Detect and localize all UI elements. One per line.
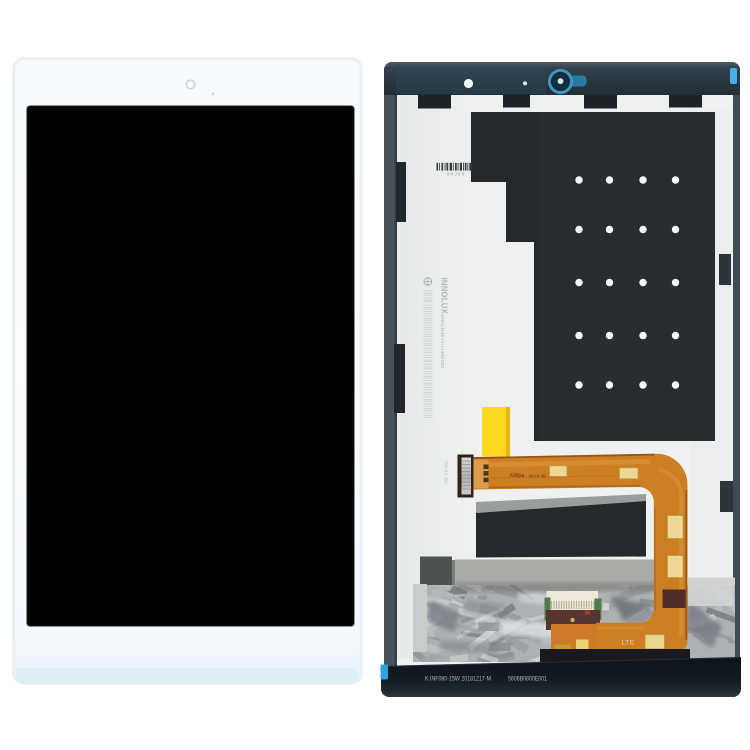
svg-text:K.INF080-15W 20181217-M: K.INF080-15W 20181217-M bbox=[425, 676, 491, 683]
svg-text:PW-E1 JM: PW-E1 JM bbox=[444, 461, 449, 483]
svg-text:INNOLUX: INNOLUX bbox=[440, 278, 449, 315]
svg-text:NL!9 35: NL!9 35 bbox=[529, 474, 546, 480]
svg-text:A08ya: A08ya bbox=[510, 473, 525, 479]
svg-text:94J50: 94J50 bbox=[447, 172, 466, 177]
svg-text:5606B0800E001: 5606B0800E001 bbox=[508, 676, 547, 683]
svg-text:LTE: LTE bbox=[622, 640, 635, 647]
svg-text:49511D4E15I1148E033: 49511D4E15I1148E033 bbox=[439, 314, 445, 368]
